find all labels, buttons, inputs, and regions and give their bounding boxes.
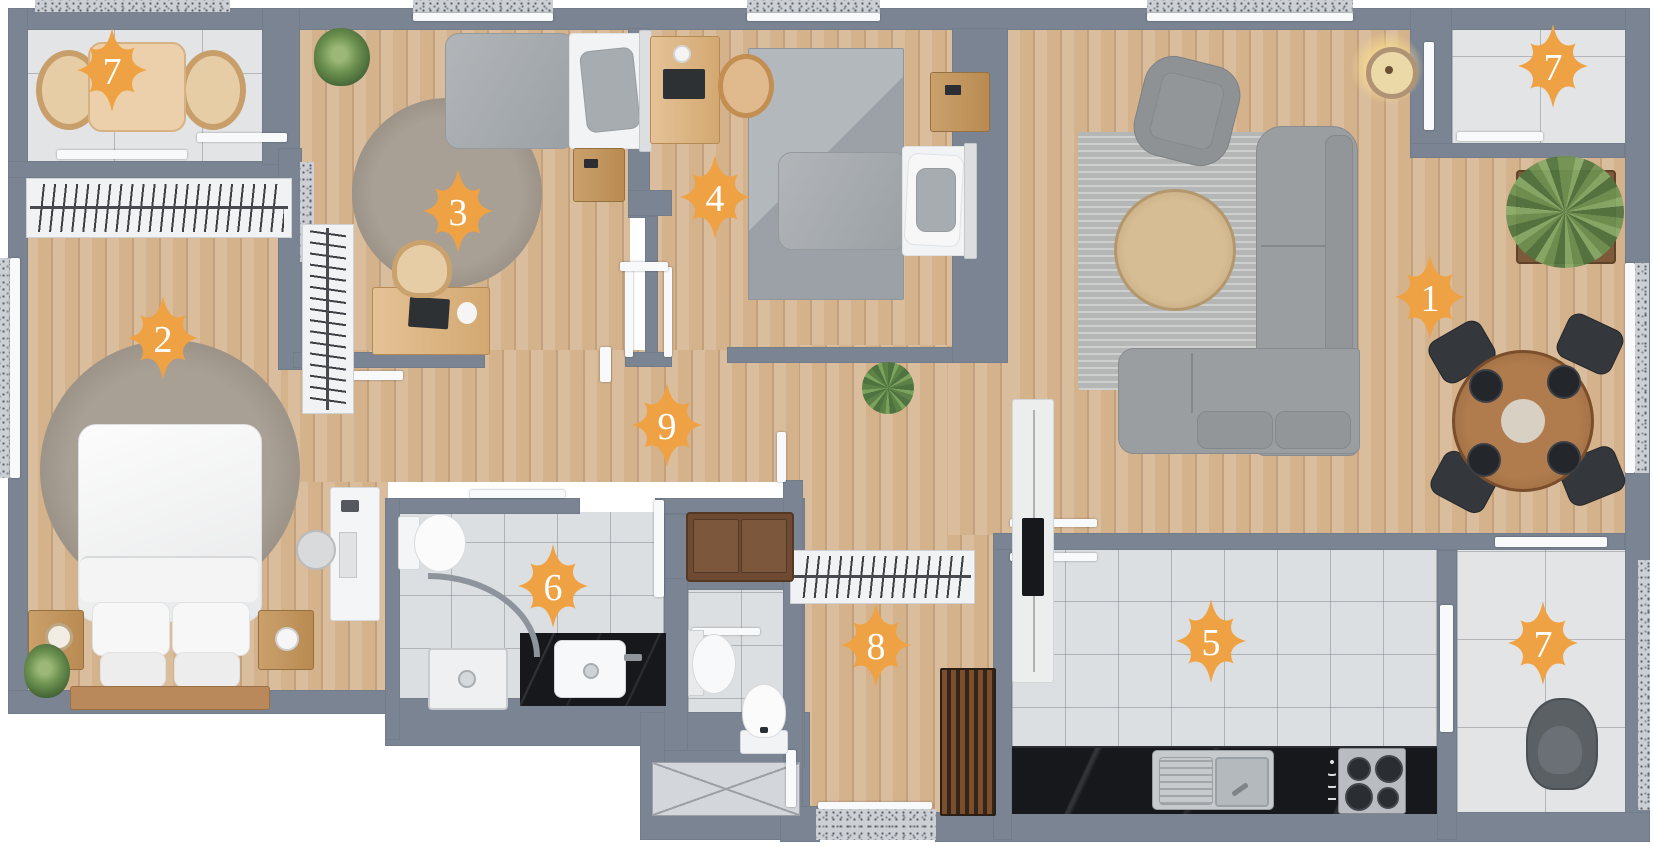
marker-number: 8 xyxy=(867,626,886,668)
marker-number: 2 xyxy=(154,319,173,361)
room-marker-bathroom[interactable]: 6 xyxy=(507,538,599,634)
room-marker-living-room[interactable]: 1 xyxy=(1384,249,1476,345)
room-marker-balcony-top-left[interactable]: 7 xyxy=(66,22,158,118)
marker-number: 5 xyxy=(1202,622,1221,664)
marker-number: 9 xyxy=(658,406,677,448)
marker-number: 4 xyxy=(706,178,725,220)
marker-number: 7 xyxy=(1544,47,1563,89)
room-marker-entrance-hall[interactable]: 8 xyxy=(830,597,922,693)
floor-plan: 12345677789 xyxy=(0,0,1653,846)
marker-number: 3 xyxy=(449,192,468,234)
room-marker-bedroom-3[interactable]: 4 xyxy=(669,149,761,245)
room-marker-bedroom-2[interactable]: 3 xyxy=(412,163,504,259)
marker-number: 7 xyxy=(103,51,122,93)
marker-number: 7 xyxy=(1534,624,1553,666)
room-marker-corridor[interactable]: 9 xyxy=(621,377,713,473)
room-marker-balcony-bottom-right[interactable]: 7 xyxy=(1497,595,1589,691)
room-marker-kitchen[interactable]: 5 xyxy=(1165,593,1257,689)
marker-number: 6 xyxy=(544,567,563,609)
marker-number: 1 xyxy=(1421,278,1440,320)
markers-layer: 12345677789 xyxy=(0,0,1653,846)
room-marker-balcony-top-right[interactable]: 7 xyxy=(1507,18,1599,114)
room-marker-master-bedroom[interactable]: 2 xyxy=(117,290,209,386)
